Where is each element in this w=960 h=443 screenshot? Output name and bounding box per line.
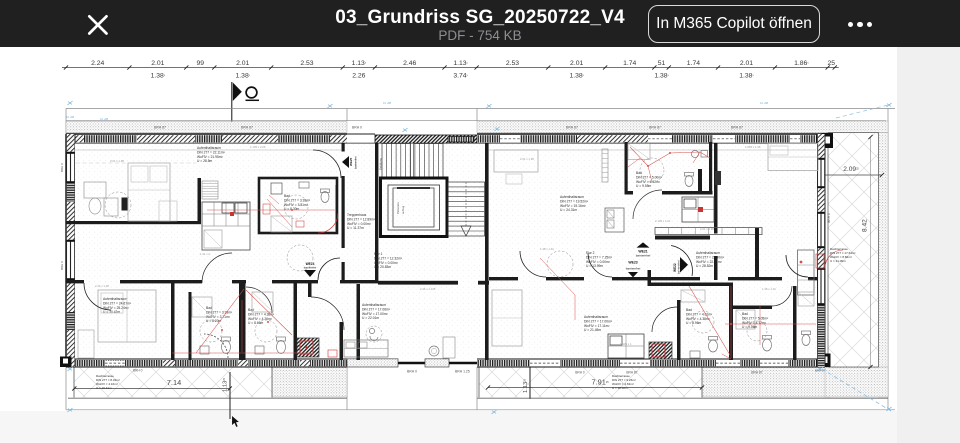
svg-text:1.135: 1.135 <box>453 60 468 67</box>
svg-text:25: 25 <box>827 60 835 67</box>
svg-text:1.38 x 1.01: 1.38 x 1.01 <box>540 247 554 251</box>
svg-text:BRH 0: BRH 0 <box>352 126 362 130</box>
svg-text:BRH 87: BRH 87 <box>241 126 253 130</box>
svg-text:BRH 0: BRH 0 <box>827 213 831 223</box>
svg-text:2.135 x 1.01: 2.135 x 1.01 <box>655 219 671 223</box>
svg-text:WE25: WE25 <box>349 157 353 166</box>
svg-text:1.135 x 1: 1.135 x 1 <box>620 342 632 346</box>
svg-text:2.01 x 1.38: 2.01 x 1.38 <box>110 159 124 163</box>
svg-text:2.46 x 1.135: 2.46 x 1.135 <box>420 287 436 291</box>
svg-text:1.135: 1.135 <box>352 60 367 67</box>
svg-text:2.01: 2.01 <box>236 60 249 67</box>
svg-text:1.38 x 1.01: 1.38 x 1.01 <box>762 287 776 291</box>
svg-text:WE24: WE24 <box>306 262 315 266</box>
svg-text:BRH 87: BRH 87 <box>751 371 762 375</box>
svg-text:1.385: 1.385 <box>151 73 166 80</box>
svg-text:1.385: 1.385 <box>654 73 669 80</box>
svg-text:2.26: 2.26 <box>352 73 365 80</box>
svg-text:BRH 87: BRH 87 <box>649 126 661 130</box>
svg-text:1.385: 1.385 <box>236 73 251 80</box>
svg-text:1.74: 1.74 <box>623 60 636 67</box>
svg-text:8.42: 8.42 <box>862 219 869 232</box>
svg-text:1.385: 1.385 <box>569 73 584 80</box>
svg-text:10 +88: 10 +88 <box>383 101 392 105</box>
svg-text:BRH 0: BRH 0 <box>133 369 143 373</box>
svg-text:7.14: 7.14 <box>167 378 181 387</box>
svg-text:10 +88: 10 +88 <box>760 101 769 105</box>
svg-text:2.01 x 1.38: 2.01 x 1.38 <box>520 157 534 161</box>
svg-text:51: 51 <box>658 60 666 67</box>
svg-text:1.865: 1.865 <box>794 60 809 67</box>
svg-text:3.745: 3.745 <box>453 73 468 80</box>
svg-text:2.01 x 1.38: 2.01 x 1.38 <box>700 227 714 231</box>
svg-text:Personen-: Personen- <box>396 201 400 214</box>
svg-text:1.74: 1.74 <box>687 60 700 67</box>
svg-text:2.24: 2.24 <box>91 60 104 67</box>
svg-text:aufzug: aufzug <box>401 205 405 214</box>
svg-text:BRH 0: BRH 0 <box>575 371 585 375</box>
svg-text:10 +88: 10 +88 <box>66 115 75 119</box>
svg-text:BRH 87: BRH 87 <box>626 371 637 375</box>
svg-text:1.865 x 1.38: 1.865 x 1.38 <box>745 145 761 149</box>
svg-text:2.24 x 1.38: 2.24 x 1.38 <box>95 284 109 288</box>
svg-text:BRH 87: BRH 87 <box>566 126 578 130</box>
svg-text:BRH 87: BRH 87 <box>731 126 743 130</box>
svg-text:BRH 0: BRH 0 <box>60 163 64 172</box>
svg-text:barrierefrei: barrierefrei <box>677 260 681 274</box>
svg-text:1.385: 1.385 <box>739 73 754 80</box>
svg-text:BRH 0: BRH 0 <box>60 261 64 270</box>
svg-text:BRH 0: BRH 0 <box>407 370 417 374</box>
svg-text:BRH 1.25: BRH 1.25 <box>455 370 470 374</box>
svg-text:1.135 x 2.26: 1.135 x 2.26 <box>250 145 266 149</box>
svg-text:99: 99 <box>197 60 205 67</box>
svg-text:2.53: 2.53 <box>300 60 313 67</box>
svg-text:10 +88: 10 +88 <box>100 117 109 121</box>
svg-text:BRH 87: BRH 87 <box>154 126 166 130</box>
svg-text:Belüftung: Belüftung <box>379 158 383 170</box>
svg-text:barrierefrei: barrierefrei <box>354 156 358 169</box>
svg-text:barrierefrei: barrierefrei <box>636 254 651 258</box>
svg-text:2.01: 2.01 <box>570 60 583 67</box>
svg-text:WE23: WE23 <box>628 261 637 265</box>
svg-text:1.01 x 2: 1.01 x 2 <box>200 252 210 256</box>
svg-text:barrierefrei: barrierefrei <box>626 266 641 270</box>
svg-text:2.53: 2.53 <box>506 60 519 67</box>
svg-text:2.01: 2.01 <box>151 60 164 67</box>
svg-text:2.01: 2.01 <box>740 60 753 67</box>
svg-text:2.46: 2.46 <box>403 60 416 67</box>
